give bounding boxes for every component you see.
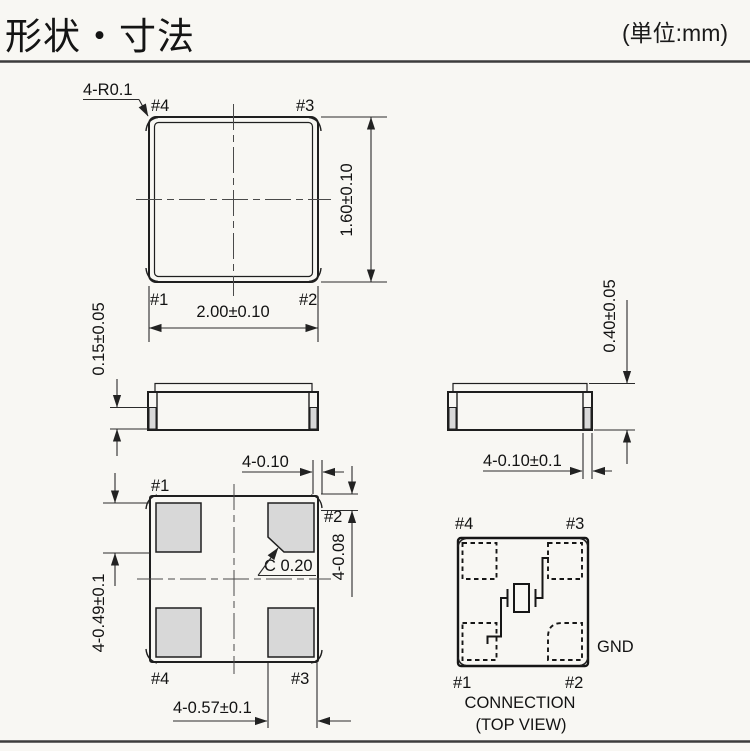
corner-notch bbox=[146, 118, 158, 132]
conn-pad-2 bbox=[548, 623, 582, 660]
corner-notch bbox=[309, 118, 321, 132]
bottom-view: #1 #2 #4 #3 C 0.20 4-0.10 4-0.08 4-0.49±… bbox=[90, 453, 358, 728]
crystal-symbol bbox=[514, 584, 529, 612]
dim-pad-height-label: 0.15±0.05 bbox=[90, 302, 108, 375]
conn-pad-3 bbox=[548, 543, 582, 579]
wire-to-pin3 bbox=[536, 558, 550, 598]
terminal-pad bbox=[149, 408, 156, 430]
pin1-label: #1 bbox=[150, 291, 168, 309]
caption-line2: (TOP VIEW) bbox=[475, 716, 566, 734]
corner-radius-label: 4-R0.1 bbox=[83, 81, 133, 99]
dim-width-label: 2.00±0.10 bbox=[196, 303, 269, 321]
conn-pad-1 bbox=[463, 623, 497, 660]
top-view: #4 #3 #1 #2 4-R0.1 1.60±0.10 2.00±0.10 bbox=[83, 81, 387, 342]
terminal-pad bbox=[584, 408, 591, 430]
pin4-label: #4 bbox=[455, 515, 473, 533]
pad-4 bbox=[156, 608, 201, 657]
connection-diagram: #4 #3 #1 #2 GND CONNECTION (TOP VIEW) bbox=[453, 515, 634, 734]
pin3-label: #3 bbox=[296, 97, 314, 115]
gnd-label: GND bbox=[597, 638, 634, 656]
leader-arrow bbox=[139, 100, 148, 117]
package-body bbox=[148, 392, 318, 430]
pad-2-chamfered bbox=[268, 503, 314, 552]
pin1-label: #1 bbox=[453, 674, 471, 692]
dim-terminal-width-label: 4-0.10±0.1 bbox=[483, 452, 562, 470]
dim-pad-height-label: 4-0.49±0.1 bbox=[90, 574, 108, 653]
pin2-label: #2 bbox=[299, 291, 317, 309]
package-body bbox=[448, 392, 592, 430]
package-outline bbox=[458, 538, 588, 666]
dim-height-label: 1.60±0.10 bbox=[338, 163, 356, 236]
chamfer-label: C 0.20 bbox=[264, 557, 313, 575]
terminal-pad bbox=[310, 408, 317, 430]
package-lid bbox=[155, 384, 312, 393]
dim-corner-width-label: 4-0.10 bbox=[242, 453, 289, 471]
terminal-pad bbox=[449, 408, 456, 430]
corner-notch bbox=[146, 268, 158, 282]
pin4-label: #4 bbox=[151, 670, 169, 688]
package-lid bbox=[453, 384, 587, 393]
dimension-drawing: #4 #3 #1 #2 4-R0.1 1.60±0.10 2.00±0.10 0… bbox=[0, 0, 750, 751]
conn-pad-4 bbox=[463, 543, 497, 579]
side-view-right: 0.40±0.05 4-0.10±0.1 bbox=[448, 279, 635, 479]
corner-notch bbox=[309, 268, 321, 282]
pin2-label: #2 bbox=[565, 674, 583, 692]
pin1-label: #1 bbox=[151, 477, 169, 495]
caption-line1: CONNECTION bbox=[465, 694, 576, 712]
pad-1 bbox=[156, 503, 201, 552]
wire-to-pin1 bbox=[488, 598, 508, 644]
side-view-front: 0.15±0.05 bbox=[90, 302, 318, 456]
dim-corner-height-label: 4-0.08 bbox=[330, 534, 348, 581]
pin4-label: #4 bbox=[151, 97, 169, 115]
pin3-label: #3 bbox=[291, 670, 309, 688]
pin3-label: #3 bbox=[566, 515, 584, 533]
dim-pad-width-label: 4-0.57±0.1 bbox=[173, 699, 252, 717]
dim-total-height-label: 0.40±0.05 bbox=[601, 279, 619, 352]
pad-3 bbox=[268, 608, 314, 657]
